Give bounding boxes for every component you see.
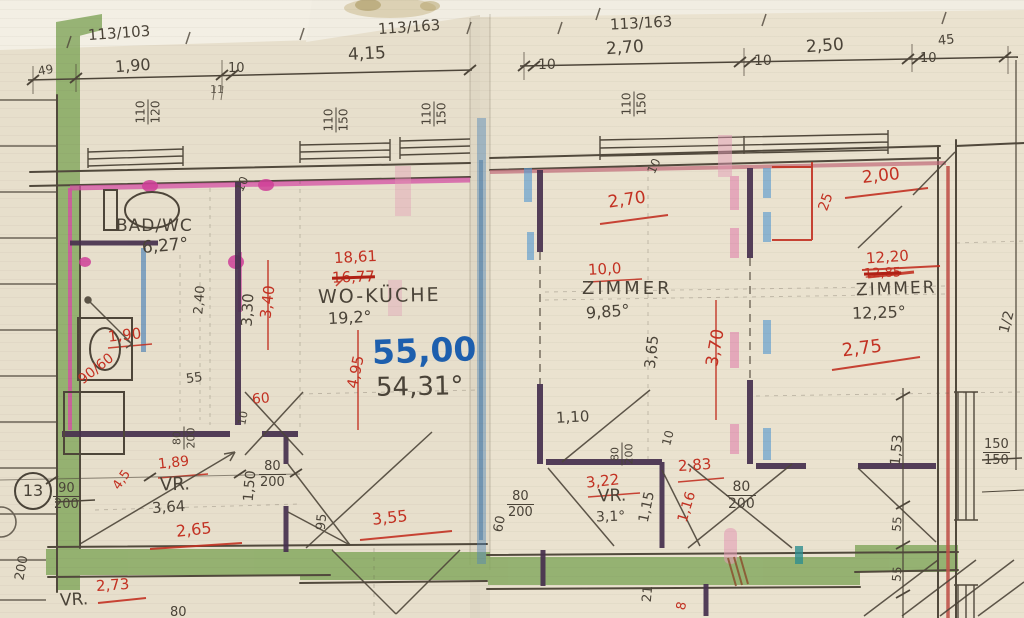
vm-area: 3,1° — [596, 509, 626, 524]
plan-ref-13: 13 — [14, 472, 52, 510]
window-label-110-150-a: 110150 — [323, 109, 350, 132]
zr-side25: 25 — [816, 191, 835, 213]
vm-wall10: 10 — [660, 429, 676, 447]
vl-width265: 2,65 — [175, 520, 212, 540]
floorplan-sheet: 113/103 113/163 113/163 49 1,90 10 4,15 … — [0, 0, 1024, 618]
vm-gap60: 60 — [492, 515, 508, 534]
door-width: 90 — [58, 482, 75, 495]
window-label-110-120: 110120 — [135, 101, 162, 124]
zr-width-bottom: 2,75 — [841, 338, 883, 361]
window-label-110-150-c: 110150 — [621, 93, 648, 116]
parcel-left: 113/103 — [88, 24, 151, 43]
room-name-vr-left: VR. — [160, 475, 191, 494]
door-height: 200 — [624, 444, 635, 465]
vl-door-80-200-b: 80200 — [172, 428, 197, 449]
labels-layer: 113/103 113/163 113/163 49 1,90 10 4,15 … — [0, 0, 1024, 618]
dim-270: 2,70 — [605, 39, 644, 59]
re-half: 1/2 — [997, 309, 1016, 334]
zm-h365: 3,65 — [643, 335, 661, 370]
door-height: 200 — [54, 498, 79, 511]
zm-wall10: 10 — [645, 157, 662, 176]
bt-side200: 200 — [13, 555, 30, 582]
ref-number: 13 — [23, 483, 43, 499]
window-width: 150 — [984, 438, 1009, 451]
bad-h340: 3,40 — [259, 285, 278, 320]
room-name-vr-bottom: VR. — [60, 591, 89, 609]
room-name-zimmer-mid: ZIMMER — [582, 280, 673, 298]
room-name-wokueche: WO-KÜCHE — [318, 286, 441, 307]
wk-height: 4,95 — [345, 354, 367, 390]
room-name-bad: BAD/WC — [116, 218, 193, 235]
window-width: 110 — [421, 103, 433, 126]
window-height: 120 — [150, 101, 162, 124]
wk-sum-blue: 55,00 — [371, 332, 476, 369]
window-height: 150 — [636, 93, 648, 116]
dim-45: 45 — [937, 33, 955, 48]
vl-gap60: 60 — [251, 391, 270, 407]
window-height: 150 — [436, 103, 448, 126]
wk-area-red: 18,61 — [334, 249, 378, 266]
zr-width-top: 2,00 — [861, 166, 900, 187]
door-width: 80 — [264, 460, 281, 473]
door-width: 80 — [172, 431, 183, 445]
vl-h95: 95 — [315, 513, 329, 531]
bt-h21: 21 — [641, 585, 655, 603]
vm-width355: 3,55 — [371, 508, 408, 528]
room-area-bad: 6,27° — [141, 236, 189, 257]
zm-width: 2,70 — [607, 189, 647, 211]
re-h55a: 55 — [890, 516, 903, 532]
re-h153: 1,53 — [889, 434, 906, 466]
dim-250: 2,50 — [805, 37, 844, 57]
vl-door-80-200-a: 80200 — [260, 460, 285, 489]
door-height: 200 — [508, 506, 533, 519]
bad-wall10: 10 — [233, 175, 250, 194]
window-height: 150 — [984, 454, 1009, 467]
zr-area-red: 12,20 — [866, 249, 910, 267]
door-width: 80 — [732, 480, 750, 494]
vl-entry-90-200: 90200 — [54, 482, 79, 511]
parcel-mid: 113/163 — [378, 18, 441, 37]
zm-area: 9,85° — [585, 302, 630, 321]
window-width: 110 — [323, 109, 335, 132]
re-h55b: 55 — [890, 566, 903, 582]
vl-area: 3,64 — [152, 499, 186, 516]
window-height: 150 — [338, 109, 350, 132]
dim-10d: 10 — [920, 52, 937, 65]
wk-area-old: 16,77 — [332, 269, 375, 285]
bt-red273: 2,73 — [96, 577, 130, 594]
dim-10b: 10 — [538, 58, 556, 72]
window-width: 110 — [621, 93, 633, 116]
room-name-vr-mid: VR. — [598, 488, 627, 506]
vl-red189: 1,89 — [157, 454, 189, 471]
window-width: 110 — [135, 101, 147, 124]
vm-door-80-200-right: 80200 — [728, 480, 755, 511]
window-label-110-150-b: 110150 — [421, 103, 448, 126]
vm-red283: 2,83 — [678, 457, 712, 474]
bt-red8: 8 — [675, 601, 689, 612]
door-height: 200 — [260, 476, 285, 489]
vl-wall10: 10 — [236, 410, 250, 426]
re-window-150-150: 150150 — [984, 438, 1009, 467]
vm-open110: 1,10 — [556, 409, 590, 426]
wk-sum-pencil: 54,31° — [376, 373, 464, 401]
dim-49: 49 — [37, 63, 54, 77]
tick-11: 11 — [210, 84, 224, 95]
dim-10c: 10 — [754, 54, 772, 68]
bad-h240: 2,40 — [192, 285, 207, 315]
parcel-right: 113/163 — [610, 14, 673, 32]
dim-190: 1,90 — [114, 57, 151, 75]
zm-h370: 3,70 — [704, 328, 727, 368]
door-height: 200 — [728, 497, 755, 511]
door-width: 80 — [512, 490, 529, 503]
door-width: 80 — [610, 447, 621, 461]
zr-area: 12,25° — [852, 304, 906, 322]
vm-h116: 1,16 — [676, 490, 699, 524]
door-height: 200 — [186, 428, 197, 449]
vm-door-80-200-left: 80200 — [508, 490, 533, 519]
bad-width: 1,90 — [107, 326, 142, 344]
vl-h150: 1,50 — [242, 470, 259, 502]
vm-h115: 1,15 — [637, 490, 657, 523]
vl-s55: 55 — [185, 371, 203, 386]
bad-door-dim: 90/60 — [76, 351, 116, 387]
zm-area-red: 10,0 — [588, 261, 622, 278]
bad-h330: 3,30 — [240, 293, 257, 327]
bt-d80: 80 — [170, 606, 187, 618]
dim-10a: 10 — [228, 62, 245, 75]
vm-door-80-200-rot: 80200 — [610, 444, 635, 465]
room-name-zimmer-right: ZIMMER — [856, 280, 937, 300]
vl-diag45: 4,5 — [111, 468, 134, 492]
wk-area: 19,2° — [328, 309, 372, 327]
dim-415: 4,15 — [348, 45, 387, 64]
